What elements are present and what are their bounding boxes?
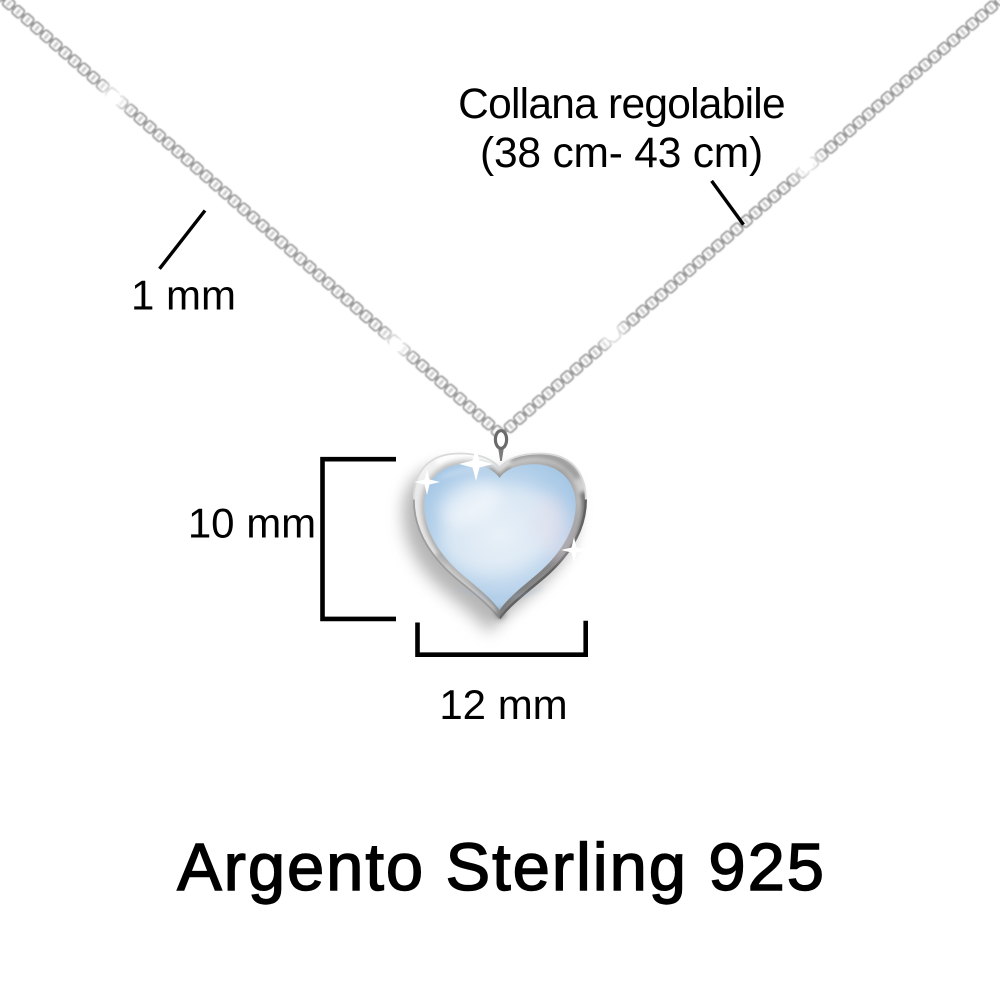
svg-text:(38 cm- 43 cm): (38 cm- 43 cm) xyxy=(480,130,763,177)
svg-text:12 mm: 12 mm xyxy=(439,681,567,728)
svg-text:10 mm: 10 mm xyxy=(188,500,316,547)
svg-text:Argento Sterling 925: Argento Sterling 925 xyxy=(177,830,826,905)
svg-text:1 mm: 1 mm xyxy=(131,272,236,319)
svg-text:Collana regolabile: Collana regolabile xyxy=(458,81,785,128)
